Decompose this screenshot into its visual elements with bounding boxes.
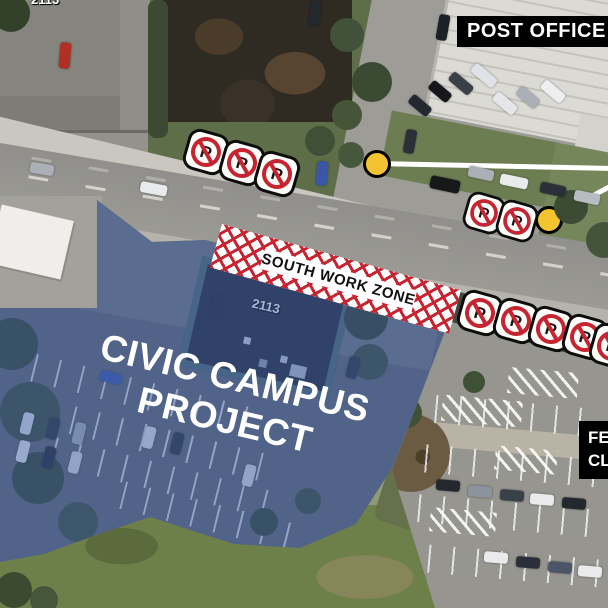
building-number-top-edge: 2113 bbox=[31, 0, 59, 7]
tree bbox=[338, 142, 364, 168]
car bbox=[29, 161, 54, 176]
car bbox=[58, 42, 71, 69]
tree bbox=[30, 586, 58, 608]
no-parking-letter: P bbox=[472, 303, 488, 322]
clipped-right-edge-label: FE CL bbox=[579, 421, 608, 479]
parking-stripes bbox=[427, 545, 599, 588]
car bbox=[578, 565, 603, 578]
car bbox=[500, 489, 525, 502]
clipped-label-line1: FE bbox=[588, 426, 608, 449]
no-parking-letter: P bbox=[269, 164, 285, 183]
hedge-row bbox=[148, 0, 168, 138]
no-parking-letter: P bbox=[543, 319, 559, 338]
no-parking-circle: P bbox=[500, 204, 534, 238]
car bbox=[562, 497, 587, 510]
tree bbox=[305, 126, 335, 156]
car bbox=[516, 556, 541, 569]
no-parking-letter: P bbox=[234, 153, 250, 172]
no-parking-letter: P bbox=[508, 311, 524, 330]
no-parking-letter: P bbox=[477, 204, 491, 222]
car bbox=[308, 1, 321, 26]
painted-island bbox=[429, 507, 497, 537]
car bbox=[530, 493, 555, 506]
painted-island bbox=[507, 367, 579, 399]
tree bbox=[332, 100, 362, 130]
tree bbox=[352, 62, 392, 102]
tree bbox=[463, 371, 485, 393]
yellow-circle-marker-icon bbox=[363, 150, 391, 178]
post-office-label: POST OFFICE bbox=[457, 16, 608, 47]
car bbox=[468, 485, 493, 498]
no-parking-letter: P bbox=[604, 336, 608, 355]
no-parking-letter: P bbox=[510, 212, 524, 230]
burned-brush-area bbox=[162, 0, 352, 122]
car bbox=[548, 561, 573, 574]
no-parking-circle: P bbox=[258, 155, 295, 192]
car bbox=[484, 551, 509, 564]
clipped-label-line2: CL bbox=[588, 449, 608, 472]
no-parking-letter: P bbox=[198, 142, 214, 161]
car bbox=[436, 479, 461, 492]
car bbox=[315, 161, 328, 186]
no-parking-circle: P bbox=[593, 327, 608, 364]
aerial-map: 2113 SOUTH WORK ZONE CIVIC CAMPUS PROJEC… bbox=[0, 0, 608, 608]
tree bbox=[330, 18, 364, 52]
